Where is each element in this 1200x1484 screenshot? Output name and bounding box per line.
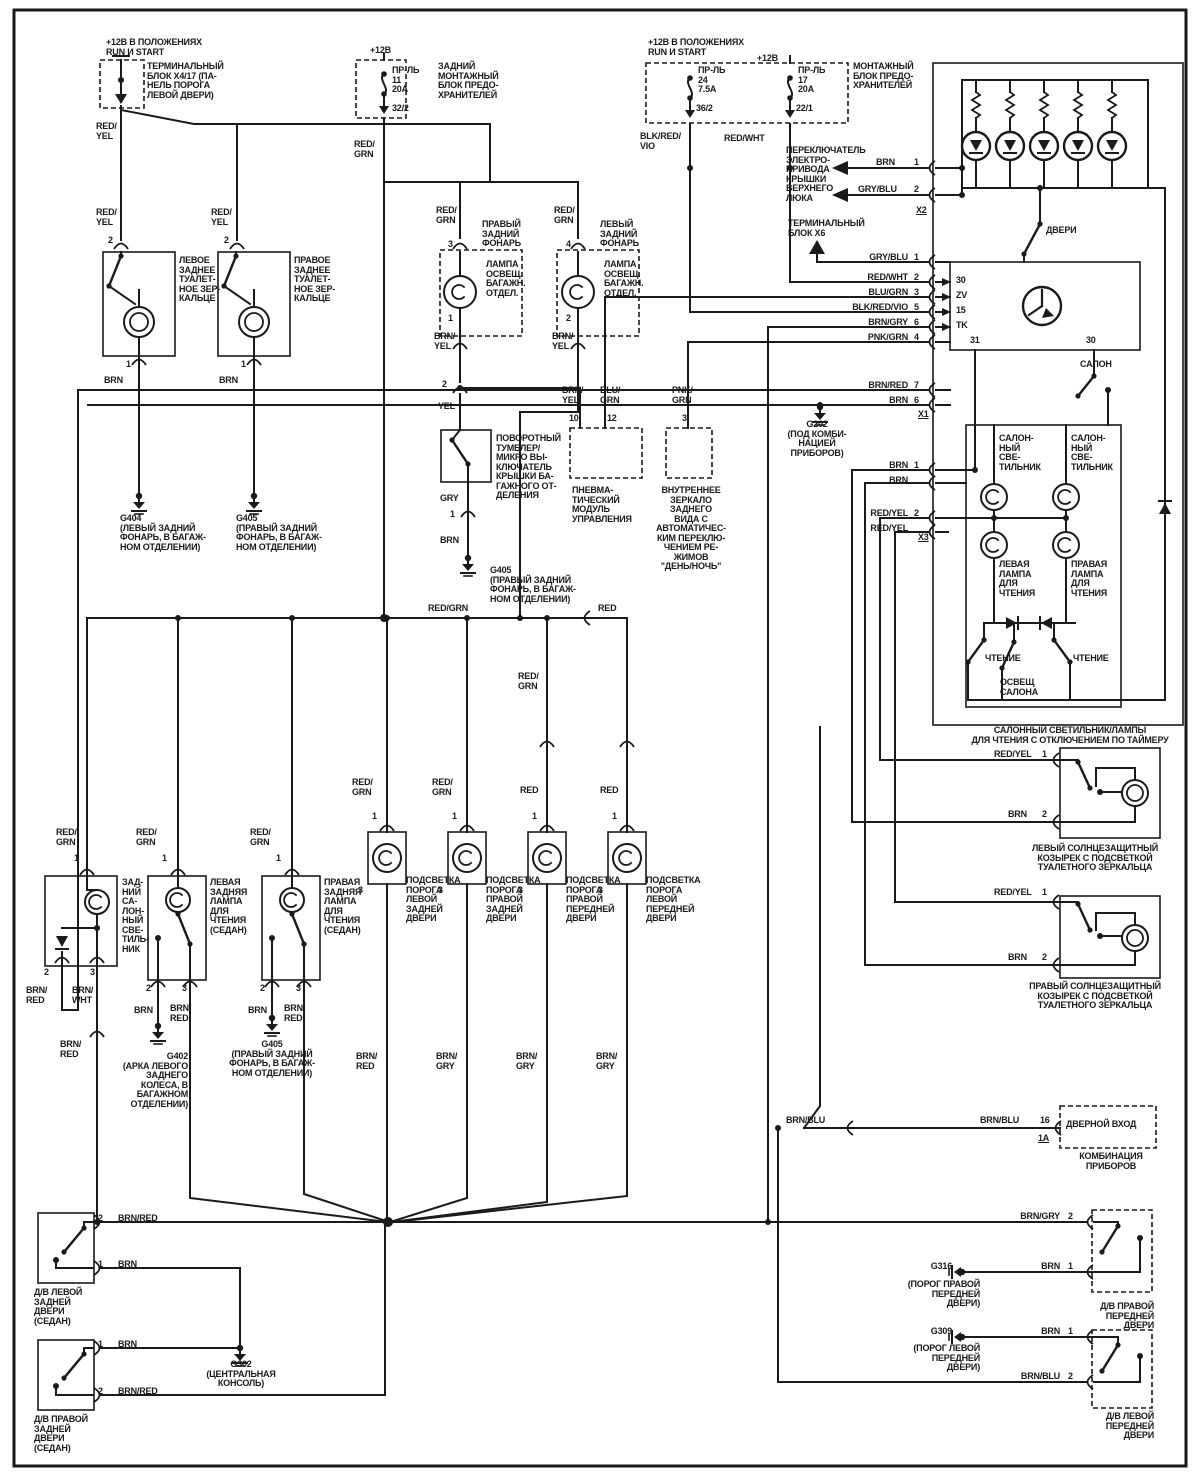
pin6-x2: 6 [914, 396, 919, 406]
wire-brn-5: BRN [828, 396, 908, 406]
timer-pin-31: 31 [970, 336, 980, 346]
pin16: 16 [1040, 1116, 1050, 1126]
wire-red-grn-2: RED/ GRN [436, 206, 457, 225]
pin2-doorB: 2 [98, 1387, 103, 1397]
dome-lamp-1: САЛОН- НЫЙ СВЕ- ТИЛЬНИК [999, 434, 1041, 472]
pin1-sill-1: 1 [372, 812, 377, 822]
timer-pin-30: 30 [956, 276, 966, 286]
wire-red-1: RED [598, 604, 616, 614]
pin1-lamp: 1 [448, 314, 453, 324]
fuse-17-pin: 22/1 [796, 104, 813, 114]
pin2-doorFL: 2 [1068, 1372, 1073, 1382]
door-switch-rear-right: Д/В ПРАВОЙ ЗАДНЕЙ ДВЕРИ (СЕДАН) [34, 1415, 88, 1453]
pin3-cl2: 3 [182, 984, 187, 994]
wire-brn-1: BRN [104, 376, 123, 386]
pin-1a: 1А [1038, 1134, 1049, 1144]
ground-g404: G404 (ЛЕВЫЙ ЗАДНИЙ ФОНАРЬ, В БАГАЖ- НОМ … [120, 514, 206, 552]
pin2-x2: 2 [914, 509, 919, 519]
rear-reading-lamp-l: ЛЕВАЯ ЗАДНЯЯ ЛАМПА ДЛЯ ЧТЕНИЯ (СЕДАН) [210, 878, 247, 935]
trunk-lamp-r: ЛАМПА ОСВЕЩ. БАГАЖН. ОТДЕЛ. [604, 260, 643, 298]
pin10: 10 [569, 414, 579, 424]
door-switch-rear-left: Д/В ЛЕВОЙ ЗАДНЕЙ ДВЕРИ (СЕДАН) [34, 1288, 82, 1326]
fuse-17: ПР-ЛЬ 17 20А [798, 66, 825, 95]
ground-g316: G316 [900, 1262, 952, 1272]
pin1-cl2: 1 [162, 854, 167, 864]
conn-x1: X1 [918, 410, 929, 420]
terminal-x6: ТЕРМИНАЛЬНЫЙ БЛОК X6 [788, 219, 865, 238]
pin2-lamp: 2 [566, 314, 571, 324]
dome-lamp-2: САЛОН- НЫЙ СВЕ- ТИЛЬНИК [1071, 434, 1113, 472]
pin1-sill-2: 1 [452, 812, 457, 822]
instrument-cluster: КОМБИНАЦИЯ ПРИБОРОВ [1056, 1152, 1166, 1171]
wire-brn-10: BRN [134, 1006, 153, 1016]
pin3-sill-4: 3 [598, 886, 603, 896]
wire-gry: GRY [440, 494, 459, 504]
pin3-cl1: 3 [90, 968, 95, 978]
fuse-11: ПР-ЛЬ 11 20А [392, 66, 419, 95]
wire-blu-grn-1: BLU/ GRN [600, 386, 620, 405]
wire-red-grn-1: RED/ GRN [354, 140, 375, 159]
pin1-cl3: 1 [276, 854, 281, 864]
wire-blu-grn-2: BLU/GRN [828, 288, 908, 298]
sill-lamp-3: ПОДСВЕТКА ПОРОГА ПРАВОЙ ПЕРЕДНЕЙ ДВЕРИ [566, 876, 620, 924]
pin1-doorB: 1 [98, 1340, 103, 1350]
cabin-light-switch: ОСВЕЩ САЛОНА [1000, 678, 1038, 697]
ground-g405-b: G405 (ПРАВЫЙ ЗАДНИЙ ФОНАРЬ, В БАГАЖ- НОМ… [490, 566, 576, 604]
pin12: 12 [607, 414, 617, 424]
wire-pnk-grn-2: PNK/GRN [828, 333, 908, 343]
conn-x3: X3 [918, 533, 929, 543]
reading-lamp-right: ПРАВАЯ ЛАМПА ДЛЯ ЧТЕНИЯ [1071, 560, 1107, 598]
conn-x2: X2 [916, 206, 927, 216]
pin5-x: 5 [914, 303, 919, 313]
wire-brn-9: BRN [1008, 953, 1027, 963]
wiring-diagram-page: +12В В ПОЛОЖЕНИЯХ RUN И STARTТЕРМИНАЛЬНЫ… [0, 0, 1200, 1484]
wire-gry-blu-1: GRY/BLU [858, 185, 897, 195]
pin1-doorFL: 1 [1068, 1327, 1073, 1337]
wire-brn-4: BRN [876, 158, 895, 168]
pin3-sill-3: 3 [518, 886, 523, 896]
wire-red-grn-5: RED/ GRN [518, 672, 539, 691]
trunk-lid-switch: ПОВОРОТНЫЙ ТУМБЛЕР/ МИКРО ВЫ- КЛЮЧАТЕЛЬ … [496, 434, 561, 501]
fuse-24: ПР-ЛЬ 24 7.5А [698, 66, 725, 95]
pin1-sunroof: 1 [914, 158, 919, 168]
wire-red-grn-9: RED/ GRN [136, 828, 157, 847]
wire-brn-gry-3: BRN/ GRY [516, 1052, 537, 1071]
wire-brn-gry-5: BRN/GRY [950, 1212, 1060, 1222]
reading-switch-l: ЧТЕНИЕ [985, 654, 1021, 664]
sill-lamp-4: ПОДСВЕТКА ПОРОГА ЛЕВОЙ ПЕРЕДНЕЙ ДВЕРИ [646, 876, 700, 924]
wire-red-3: RED [600, 786, 618, 796]
pin1-x: 1 [914, 253, 919, 263]
interior-unit-caption: САЛОННЫЙ СВЕТИЛЬНИК/ЛАМПЫ ДЛЯ ЧТЕНИЯ С О… [950, 726, 1190, 745]
supply-mid: +12В [370, 46, 391, 56]
wire-red-yel-4: RED/YEL [828, 509, 908, 519]
wire-brn-blu-3: BRN/BLU [950, 1372, 1060, 1382]
wire-brn-yel-2: BRN/ YEL [552, 332, 573, 351]
salon-switch: САЛОН [1080, 360, 1112, 370]
sill-lamp-2: ПОДСВЕТКА ПОРОГА ПРАВОЙ ЗАДНЕЙ ДВЕРИ [486, 876, 540, 924]
left-visor-caption: ЛЕВЫЙ СОЛНЦЕЗАЩИТНЫЙ КОЗЫРЕК С ПОДСВЕТКО… [1000, 844, 1190, 873]
wire-brn-gry-4: BRN/ GRY [596, 1052, 617, 1071]
sill-lamp-1: ПОДСВЕТКА ПОРОГА ЛЕВОЙ ЗАДНЕЙ ДВЕРИ [406, 876, 460, 924]
pin1-visor-r: 1 [1042, 888, 1047, 898]
wire-red-grn-8: RED/ GRN [56, 828, 77, 847]
wire-brn-2: BRN [219, 376, 238, 386]
timer-pin-tk: TK [956, 321, 968, 331]
pin1-doorA: 1 [98, 1260, 103, 1270]
wire-brn-gry-2: BRN/ GRY [436, 1052, 457, 1071]
ground-g405-a: G405 (ПРАВЫЙ ЗАДНИЙ ФОНАРЬ, В БАГАЖ- НОМ… [236, 514, 322, 552]
pin7-x: 7 [914, 381, 919, 391]
pin2-visor-l: 2 [1042, 810, 1047, 820]
wire-brn-red-2: BRN/ RED [356, 1052, 377, 1071]
auto-dim-mirror: ВНУТРЕННЕЕ ЗЕРКАЛО ЗАДНЕГО ВИДА С АВТОМА… [645, 486, 737, 572]
wire-brn-blu-1: BRN/BLU [786, 1116, 825, 1126]
pin3-lamp: 3 [448, 240, 453, 250]
pin1-trunk: 1 [450, 510, 455, 520]
pin1-mirror-l: 1 [126, 360, 131, 370]
wire-brn-red-3: BRN/ RED [26, 986, 47, 1005]
wire-red-yel-3: RED/ YEL [211, 208, 232, 227]
rear-fuse-box: ЗАДНИЙ МОНТАЖНЫЙ БЛОК ПРЕДО- ХРАНИТЕЛЕЙ [438, 62, 499, 100]
pin3-cl3: 3 [296, 984, 301, 994]
door-switch-front-right: Д/В ПРАВОЙ ПЕРЕДНЕЙ ДВЕРИ [1070, 1302, 1154, 1331]
pin2-doorFR: 2 [1068, 1212, 1073, 1222]
wire-red-2: RED [520, 786, 538, 796]
rear-reading-lamp-r: ПРАВАЯ ЗАДНЯЯ ЛАМПА ДЛЯ ЧТЕНИЯ (СЕДАН) [324, 878, 361, 935]
wire-brn-12: BRN [118, 1260, 137, 1270]
pin2-sunroof: 2 [914, 185, 919, 195]
wire-brn-red-6: BRN/ RED [284, 1004, 305, 1023]
pin3-sill-2: 3 [438, 886, 443, 896]
terminal-x417: ТЕРМИНАЛЬНЫЙ БЛОК X4/17 (ПА- НЕЛЬ ПОРОГА… [147, 62, 224, 100]
pin3-x: 3 [914, 288, 919, 298]
timer-pin-zv: ZV [956, 291, 967, 301]
pneumatic-module: ПНЕВМА- ТИЧЕСКИЙ МОДУЛЬ УПРАВЛЕНИЯ [572, 486, 632, 524]
wire-brn-8: BRN [1008, 810, 1027, 820]
wire-brn-yel-1: BRN/ YEL [434, 332, 455, 351]
pin2-cl1: 2 [44, 968, 49, 978]
wire-red-yel-2: RED/ YEL [96, 208, 117, 227]
pin1-sill-3: 1 [532, 812, 537, 822]
pin1-mirror-r: 1 [241, 360, 246, 370]
wire-brn-7: BRN [828, 476, 908, 486]
timer-pin-30b: 30 [1086, 336, 1096, 346]
ground-g309: G309 [900, 1327, 952, 1337]
door-input: ДВЕРНОЙ ВХОД [1066, 1120, 1136, 1130]
pin4-x: 4 [914, 333, 919, 343]
reading-lamp-left: ЛЕВАЯ ЛАМПА ДЛЯ ЧТЕНИЯ [999, 560, 1035, 598]
fuse-11-pin: 32/2 [392, 104, 409, 114]
wire-brn-red-4: BRN/ RED [60, 1040, 81, 1059]
left-vanity-mirror: ЛЕВОЕ ЗАДНЕЕ ТУАЛЕТ- НОЕ ЗЕР- КАЛЬЦЕ [179, 256, 220, 304]
wire-red-yel-5: RED/YEL [828, 524, 908, 534]
pin2-mirror-r: 2 [224, 236, 229, 246]
wire-red-grn-6: RED/ GRN [352, 778, 373, 797]
ground-g405-c: G405 (ПРАВЫЙ ЗАДНИЙ ФОНАРЬ, В БАГАЖ- НОМ… [222, 1040, 322, 1078]
pin2-x: 2 [914, 273, 919, 283]
left-tail-lamp: ЛЕВЫЙ ЗАДНИЙ ФОНАРЬ [600, 220, 639, 249]
pin1-doorFR: 1 [1068, 1262, 1073, 1272]
pin2-conn: 2 [442, 380, 447, 390]
pin1-sill-4: 1 [612, 812, 617, 822]
right-visor-caption: ПРАВЫЙ СОЛНЦЕЗАЩИТНЫЙ КОЗЫРЕК С ПОДСВЕТК… [1000, 982, 1190, 1011]
front-fuse-box: МОНТАЖНЫЙ БЛОК ПРЕДО- ХРАНИТЕЛЕЙ [853, 62, 914, 91]
ground-g302: G302 (ЦЕНТРАЛЬНАЯ КОНСОЛЬ) [186, 1360, 296, 1389]
wire-red-grn-7: RED/ GRN [432, 778, 453, 797]
wire-brn-yel-3: BRN/ YEL [562, 386, 583, 405]
door-switch-front-left: Д/В ЛЕВОЙ ПЕРЕДНЕЙ ДВЕРИ [1070, 1412, 1154, 1441]
wire-pnk-grn-1: PNK/ GRN [672, 386, 693, 405]
wire-red-wht-2: RED/WHT [828, 273, 908, 283]
right-vanity-mirror: ПРАВОЕ ЗАДНЕЕ ТУАЛЕТ- НОЕ ЗЕР- КАЛЬЦЕ [294, 256, 335, 304]
wire-brn-red-7: BRN/RED [118, 1214, 158, 1224]
pin2-cl2: 2 [146, 984, 151, 994]
wire-gry-blu-2: GRY/BLU [828, 253, 908, 263]
pin2-doorA: 2 [98, 1214, 103, 1224]
wire-red-grn-10: RED/ GRN [250, 828, 271, 847]
wire-red-yel-7: RED/YEL [994, 888, 1032, 898]
pin1-cl1: 1 [74, 854, 79, 864]
wire-brn-14: BRN [990, 1262, 1060, 1272]
wire-red-wht-1: RED/WHT [724, 134, 765, 144]
wire-brn-wht: BRN/ WHT [72, 986, 93, 1005]
wire-brn-15: BRN [990, 1327, 1060, 1337]
ground-g202: G202 (ПОД КОМБИ- НАЦИЕЙ ПРИБОРОВ) [772, 420, 862, 458]
wire-brn-3: BRN [440, 536, 459, 546]
wire-brn-red-1: BRN/RED [828, 381, 908, 391]
right-tail-lamp: ПРАВЫЙ ЗАДНИЙ ФОНАРЬ [482, 220, 521, 249]
pin1-visor-l: 1 [1042, 750, 1047, 760]
pin2-mirror-l: 2 [108, 236, 113, 246]
ground-g402: G402 (АРКА ЛЕВОГО ЗАДНЕГО КОЛЕСА, В БАГА… [80, 1052, 188, 1109]
pin3-mirror: 3 [682, 414, 687, 424]
wire-brn-red-8: BRN/RED [118, 1387, 158, 1397]
pin4-lamp: 4 [566, 240, 571, 250]
wire-blk-red-vio: BLK/RED/ VIO [640, 132, 681, 151]
wire-brn-11: BRN [248, 1006, 267, 1016]
timer-pin-15: 15 [956, 306, 966, 316]
reading-switch-r: ЧТЕНИЕ [1073, 654, 1109, 664]
fuse-24-pin: 36/2 [696, 104, 713, 114]
wire-red-grn-3: RED/ GRN [554, 206, 575, 225]
wire-brn-blu-2: BRN/BLU [980, 1116, 1019, 1126]
supply-right-2: +12В [757, 54, 778, 64]
pin2-visor-r: 2 [1042, 953, 1047, 963]
pin6-x: 6 [914, 318, 919, 328]
sunroof-switch: ПЕРЕКЛЮЧАТЕЛЬ ЭЛЕКТРО- ПРИВОДА КРЫШКИ ВЕ… [786, 146, 866, 203]
wire-brn-6: BRN [828, 461, 908, 471]
wire-blk-red-vio-2: BLK/RED/VIO [820, 303, 908, 313]
wire-red-grn-4: RED/GRN [428, 604, 468, 614]
wire-brn-red-5: BRN/ RED [170, 1004, 191, 1023]
ground-g316-desc: (ПОРОГ ПРАВОЙ ПЕРЕДНЕЙ ДВЕРИ) [850, 1280, 980, 1309]
supply-right: +12В В ПОЛОЖЕНИЯХ RUN И START [648, 38, 744, 57]
wire-yel: YEL [438, 402, 455, 412]
wire-red-yel-1: RED/ YEL [96, 122, 117, 141]
rear-dome-lamp: ЗАД- НИЙ СА- ЛОН- НЫЙ СВЕ- ТИЛЬ- НИК [122, 878, 149, 954]
pin2-cl3: 2 [260, 984, 265, 994]
wire-brn-13: BRN [118, 1340, 137, 1350]
wire-brn-gry-1: BRN/GRY [828, 318, 908, 328]
diagram-labels-layer: +12В В ПОЛОЖЕНИЯХ RUN И STARTТЕРМИНАЛЬНЫ… [0, 0, 1200, 1484]
pin1-x2: 1 [914, 461, 919, 471]
trunk-lamp-l: ЛАМПА ОСВЕЩ. БАГАЖН. ОТДЕЛ. [486, 260, 525, 298]
supply-left: +12В В ПОЛОЖЕНИЯХ RUN И START [106, 38, 202, 57]
ground-g309-desc: (ПОРОГ ЛЕВОЙ ПЕРЕДНЕЙ ДВЕРИ) [850, 1344, 980, 1373]
doors-switch: ДВЕРИ [1046, 226, 1076, 236]
wire-red-yel-6: RED/YEL [994, 750, 1032, 760]
